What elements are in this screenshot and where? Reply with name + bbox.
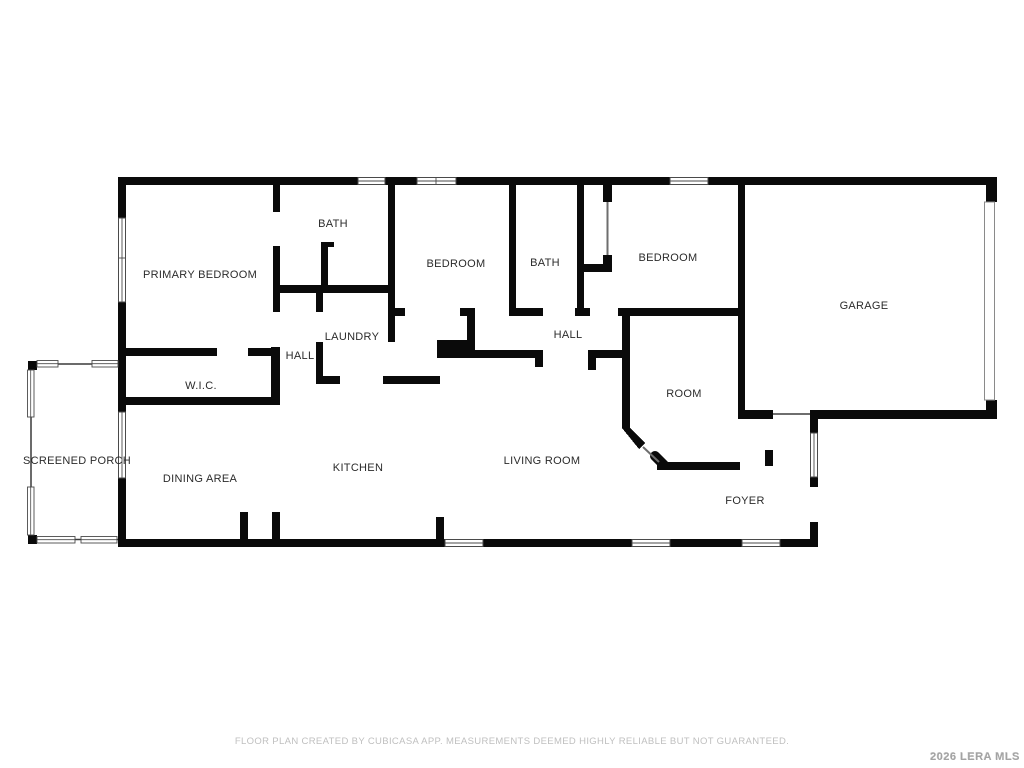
room-label-laundry: LAUNDRY xyxy=(325,331,379,343)
room-label-wic: W.I.C. xyxy=(185,380,217,392)
porch-layer xyxy=(28,361,119,545)
floor-plan-drawing xyxy=(0,0,1024,768)
room-label-garage: GARAGE xyxy=(840,300,889,312)
room-label-bath-1: BATH xyxy=(318,218,348,230)
footer-disclaimer: FLOOR PLAN CREATED BY CUBICASA APP. MEAS… xyxy=(0,736,1024,747)
windows-layer xyxy=(119,178,995,547)
room-label-hall-2: HALL xyxy=(554,329,583,341)
room-label-bath-2: BATH xyxy=(530,257,560,269)
room-label-kitchen: KITCHEN xyxy=(333,462,383,474)
room-label-bedroom-2: BEDROOM xyxy=(639,252,698,264)
room-label-room: ROOM xyxy=(666,388,701,400)
room-label-living-room: LIVING ROOM xyxy=(504,455,581,467)
room-label-dining-area: DINING AREA xyxy=(163,473,237,485)
walls-layer xyxy=(118,177,997,547)
room-label-hall-1: HALL xyxy=(286,350,315,362)
room-label-screened-porch: SCREENED PORCH xyxy=(23,455,131,467)
room-label-bedroom-1: BEDROOM xyxy=(427,258,486,270)
doors-layer xyxy=(608,202,811,462)
window-midlines xyxy=(119,178,815,543)
room-label-primary-bedroom: PRIMARY BEDROOM xyxy=(143,269,257,281)
room-label-foyer: FOYER xyxy=(725,495,764,507)
floor-plan-page: PRIMARY BEDROOM BATH BEDROOM BATH BEDROO… xyxy=(0,0,1024,768)
watermark-mls: 2026 LERA MLS xyxy=(930,751,1020,763)
